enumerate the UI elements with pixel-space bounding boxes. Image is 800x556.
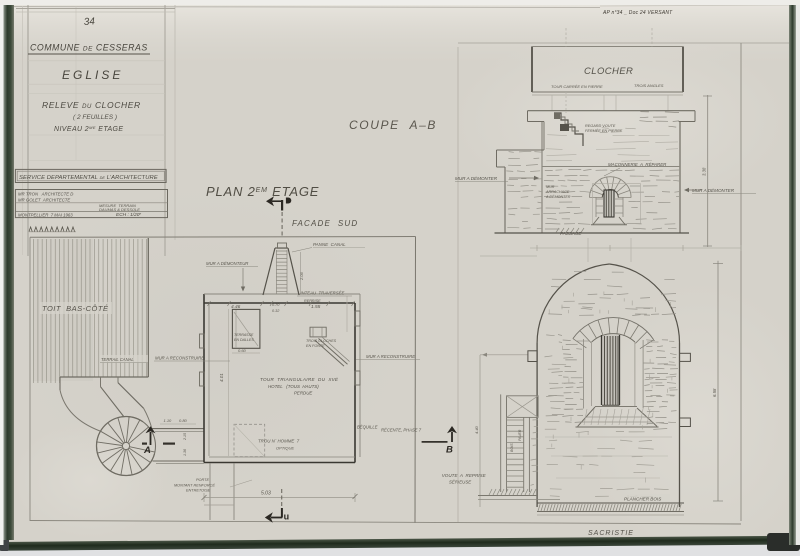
svg-text:TROIS CLOCHES: TROIS CLOCHES — [306, 339, 337, 343]
svg-text:CLOCHER: CLOCHER — [584, 66, 633, 77]
svg-text:1.10: 1.10 — [164, 418, 173, 423]
svg-text:2.15: 2.15 — [183, 433, 187, 441]
svg-text:EGLISE: EGLISE — [62, 68, 123, 82]
svg-text:0.32: 0.32 — [272, 309, 280, 313]
svg-text:TERRAIL CANAL: TERRAIL CANAL — [101, 357, 134, 362]
svg-text:NIVEAU 2ME ETAGE: NIVEAU 2ME ETAGE — [54, 125, 123, 133]
svg-text:BOIS: BOIS — [510, 443, 514, 452]
svg-text:TOUR CARRÉE EN PIERRE: TOUR CARRÉE EN PIERRE — [551, 84, 603, 89]
svg-text:LINTEAU TRAVERSÉE: LINTEAU TRAVERSÉE — [298, 291, 344, 296]
svg-text:SERVICE DEPARTEMENTAL DE L’ARC: SERVICE DEPARTEMENTAL DE L’ARCHITECTURE — [19, 175, 158, 181]
svg-text:PLANCHER BOIS: PLANCHER BOIS — [624, 497, 662, 502]
svg-text:EN FONTE: EN FONTE — [306, 344, 325, 348]
svg-text:ARRACHAGE: ARRACHAGE — [545, 190, 570, 194]
svg-text:PERDUE: PERDUE — [294, 391, 312, 396]
svg-text:TROIS ANGLES: TROIS ANGLES — [634, 83, 664, 88]
svg-text:REPRISE: REPRISE — [304, 299, 321, 303]
svg-text:4.40: 4.40 — [474, 425, 479, 434]
svg-text:PILIER: PILIER — [518, 429, 522, 441]
svg-text:A: A — [143, 445, 151, 456]
svg-text:COUPE A–B: COUPE A–B — [349, 118, 437, 132]
svg-text:REGARD VOUTE: REGARD VOUTE — [585, 124, 616, 128]
svg-text:0.60: 0.60 — [238, 348, 247, 353]
svg-text:TROU Nˉ HOMME 7: TROU Nˉ HOMME 7 — [258, 439, 300, 444]
svg-text:MUR A RECONSTRUIRE: MUR A RECONSTRUIRE — [155, 356, 204, 361]
svg-text:2.06: 2.06 — [299, 271, 304, 281]
svg-text:34: 34 — [83, 16, 95, 28]
svg-text:MONTPELLIER 7 MAI 1963: MONTPELLIER 7 MAI 1963 — [18, 213, 73, 218]
svg-text:4.01: 4.01 — [219, 373, 224, 382]
svg-text:6.58: 6.58 — [712, 388, 717, 397]
svg-text:5.03: 5.03 — [261, 491, 271, 497]
svg-text:3.38: 3.38 — [702, 167, 707, 176]
svg-text:SACRISTIE: SACRISTIE — [588, 530, 634, 537]
svg-text:PANNE CANAL: PANNE CANAL — [313, 242, 346, 247]
svg-text:MR GOLET ARCHITECTE: MR GOLET ARCHITECTE — [18, 197, 70, 202]
svg-text:MUR A DÉMONTER: MUR A DÉMONTER — [455, 175, 498, 181]
svg-text:ECH : 1/20e: ECH : 1/20e — [116, 212, 141, 219]
svg-text:MUR A RECONSTRUIRE: MUR A RECONSTRUIRE — [366, 354, 415, 359]
svg-text:MONTANT RENFORCÉ: MONTANT RENFORCÉ — [174, 483, 215, 488]
svg-text:TOIT BAS-CÔTÉ: TOIT BAS-CÔTÉ — [42, 304, 109, 313]
svg-text:MUR: MUR — [546, 185, 555, 189]
svg-text:1.36: 1.36 — [183, 449, 187, 456]
svg-text:B: B — [446, 445, 453, 456]
svg-text:( 2 FEUILLES ): ( 2 FEUILLES ) — [73, 114, 117, 121]
svg-text:MR TRON ARCHITECTE D: MR TRON ARCHITECTE D — [18, 192, 73, 197]
svg-text:PORTE: PORTE — [196, 478, 209, 482]
svg-text:TERRASSE: TERRASSE — [234, 333, 254, 337]
svg-text:SÉRIEUSE: SÉRIEUSE — [449, 480, 471, 485]
svg-text:BÉQUILLE: BÉQUILLE — [357, 425, 378, 430]
svg-text:HOTEL (TOUS HAUTS): HOTEL (TOUS HAUTS) — [268, 384, 319, 389]
svg-text:u: u — [284, 512, 290, 522]
svg-text:AP n°34 _ Doc 24 VERSANT: AP n°34 _ Doc 24 VERSANT — [602, 10, 673, 16]
svg-text:EN DALLES: EN DALLES — [234, 338, 254, 342]
svg-text:MUR A DÉMONTEUR: MUR A DÉMONTEUR — [206, 261, 248, 266]
svg-text:RÉCENTE, PHASE 7: RÉCENTE, PHASE 7 — [381, 428, 422, 433]
svg-text:A DÉMONTER: A DÉMONTER — [545, 194, 571, 199]
svg-text:0.70: 0.70 — [272, 303, 280, 307]
svg-text:MAÇONNERIE A RÉPARER: MAÇONNERIE A RÉPARER — [608, 162, 667, 167]
svg-text:1.55: 1.55 — [311, 304, 321, 310]
svg-text:RELEVE DU CLOCHER: RELEVE DU CLOCHER — [42, 100, 141, 110]
svg-text:FACADE SUD: FACADE SUD — [292, 219, 358, 228]
svg-text:0.80: 0.80 — [179, 418, 188, 423]
svg-text:ENTRETOISE: ENTRETOISE — [186, 489, 211, 493]
svg-text:DAUMAS & DESSOLE: DAUMAS & DESSOLE — [99, 207, 140, 212]
svg-text:TOUR TRIANGULAIRE DU XIIÉ: TOUR TRIANGULAIRE DU XIIÉ — [260, 376, 339, 382]
svg-text:4.46: 4.46 — [231, 304, 241, 310]
svg-text:PASSAGE: PASSAGE — [560, 231, 583, 236]
svg-text:OPTIQUE: OPTIQUE — [276, 446, 294, 451]
